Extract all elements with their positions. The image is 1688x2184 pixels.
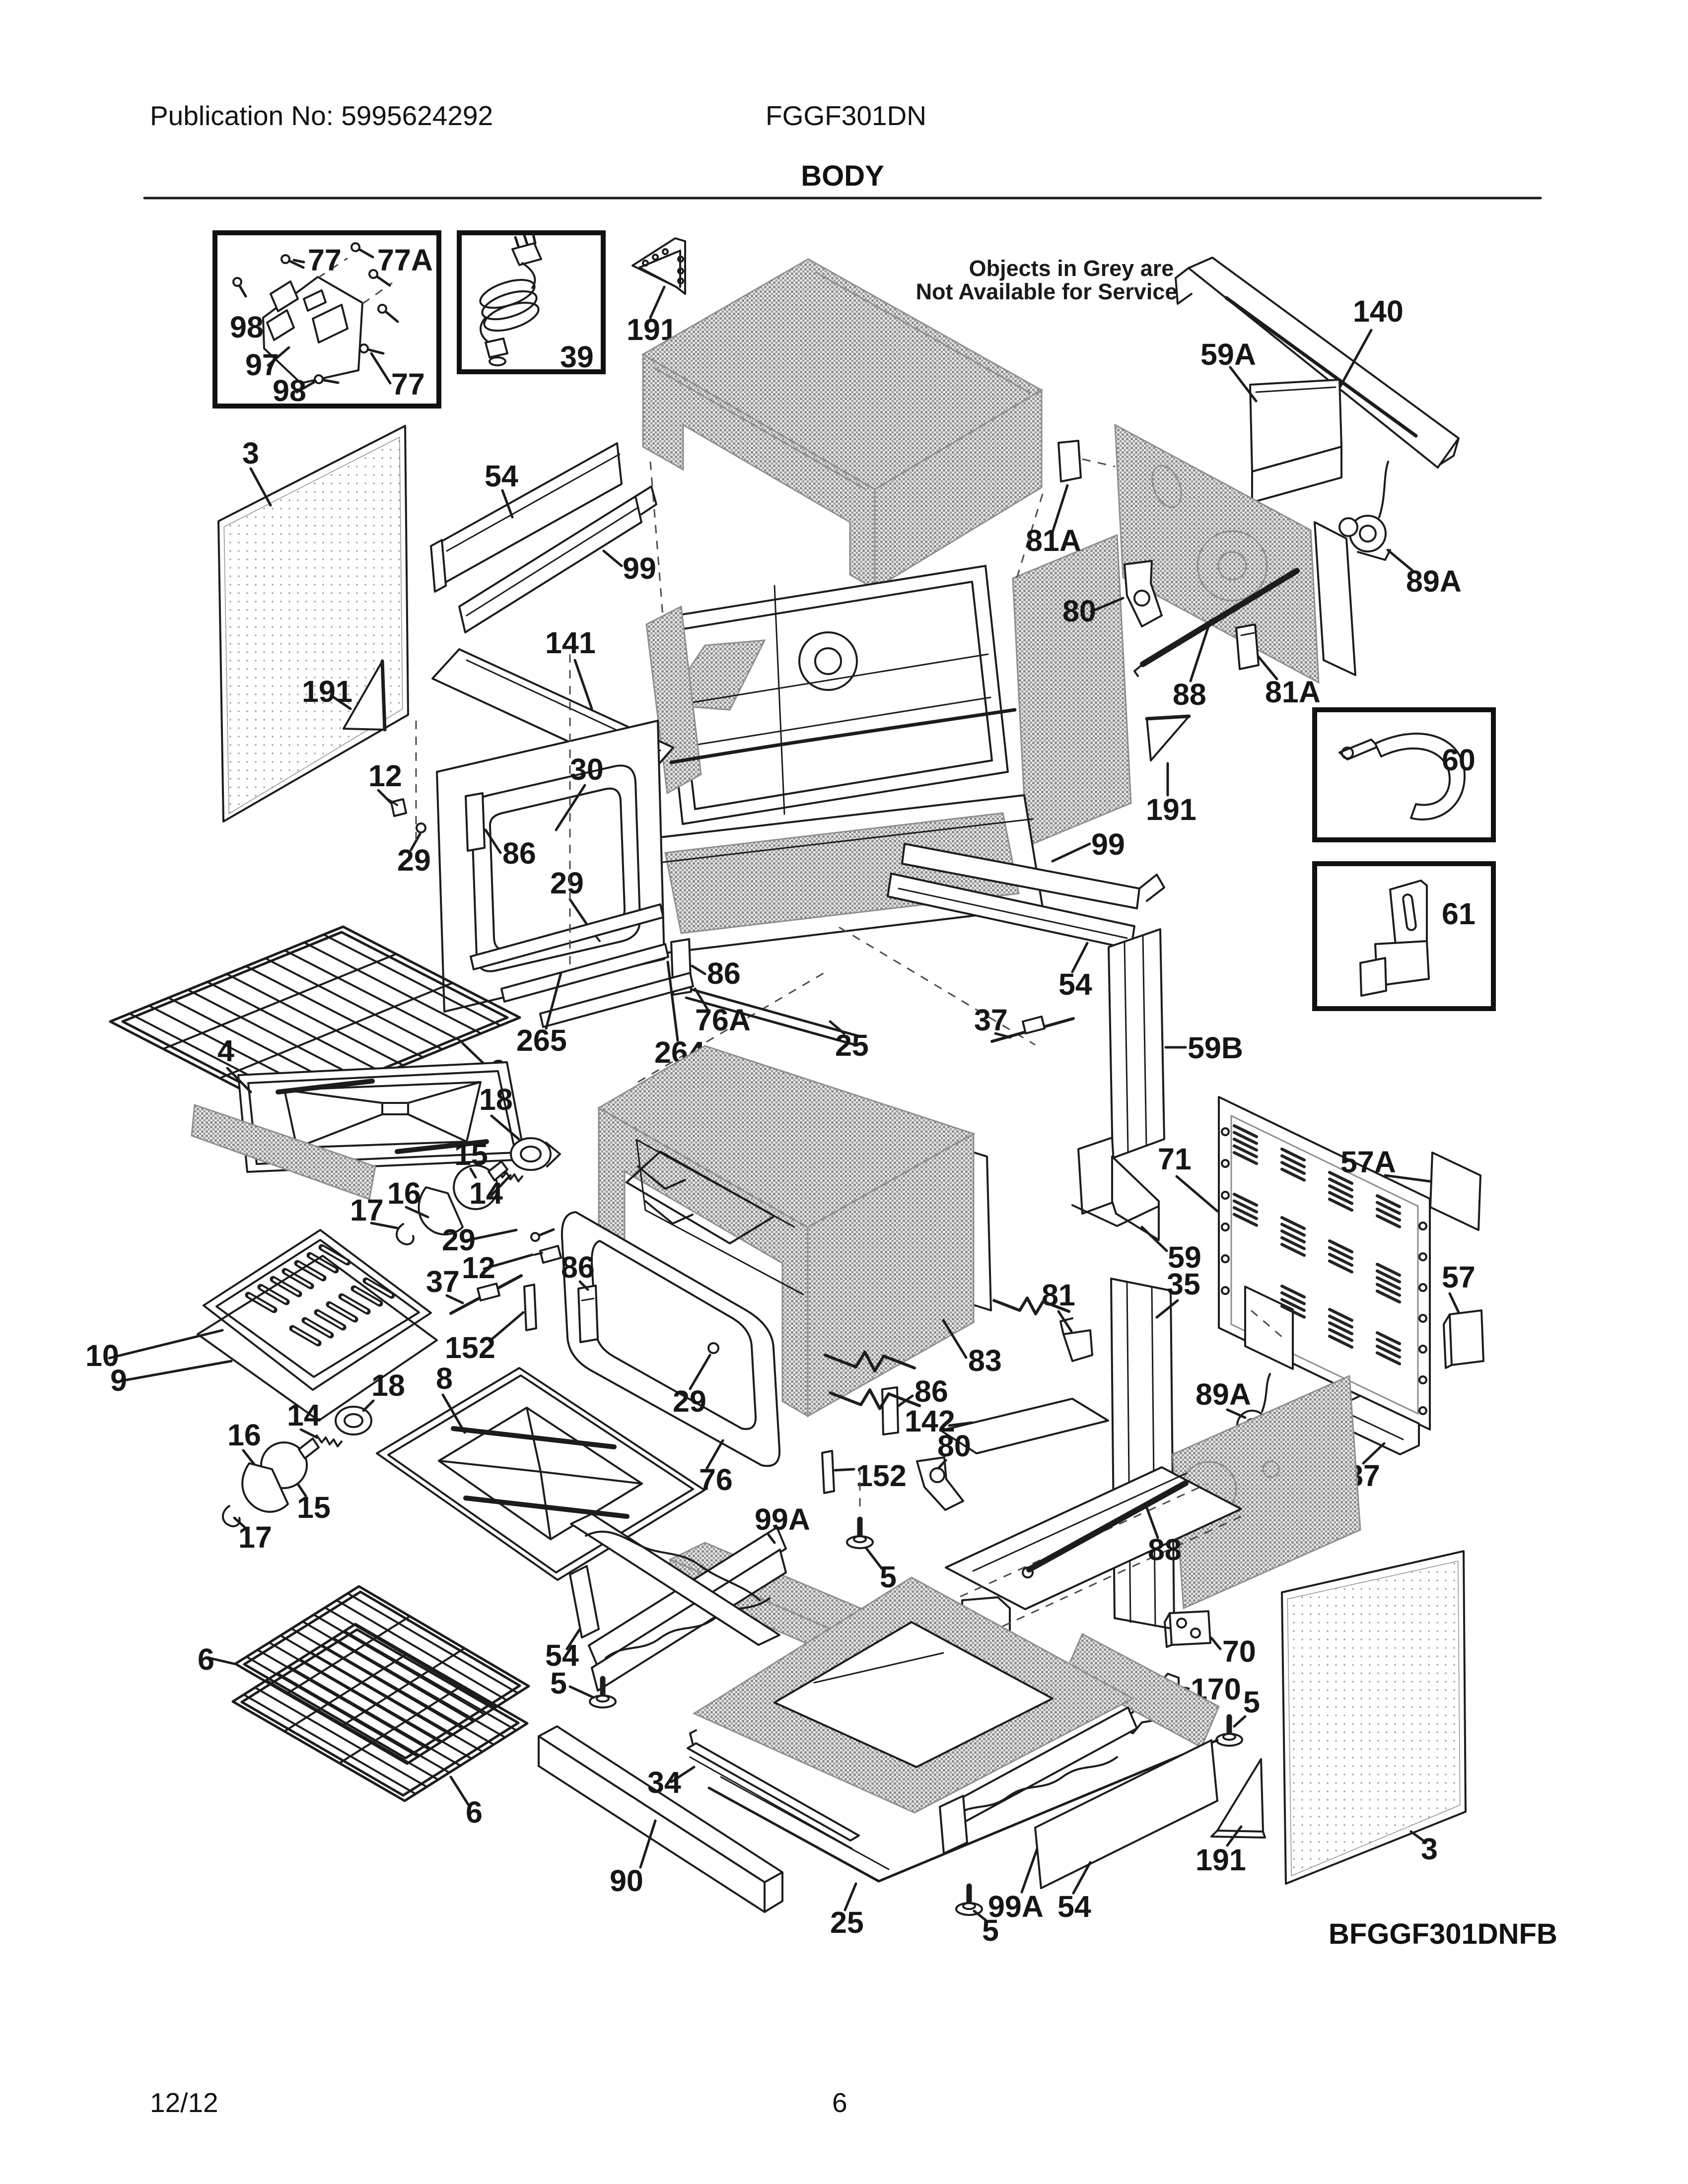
svg-text:12/12: 12/12: [150, 2087, 218, 2118]
svg-text:15: 15: [454, 1138, 488, 1171]
svg-text:90: 90: [610, 1864, 643, 1898]
svg-text:35: 35: [1167, 1267, 1200, 1301]
svg-text:265: 265: [516, 1024, 567, 1057]
svg-text:98: 98: [273, 374, 306, 408]
svg-text:17: 17: [238, 1520, 272, 1554]
svg-text:54: 54: [485, 459, 518, 493]
svg-text:54: 54: [1057, 1890, 1091, 1923]
svg-text:34: 34: [647, 1766, 681, 1799]
svg-text:86: 86: [707, 956, 741, 990]
svg-text:BODY: BODY: [801, 160, 884, 192]
svg-text:5: 5: [982, 1913, 999, 1947]
svg-text:83: 83: [968, 1344, 1002, 1377]
svg-text:86: 86: [502, 836, 536, 870]
svg-text:76: 76: [699, 1463, 733, 1497]
svg-text:86: 86: [561, 1250, 595, 1284]
svg-text:3: 3: [1421, 1832, 1438, 1866]
svg-text:89A: 89A: [1196, 1377, 1251, 1411]
svg-text:12: 12: [368, 759, 402, 793]
svg-text:25: 25: [835, 1028, 869, 1062]
svg-text:Publication No: 5995624292: Publication No: 5995624292: [150, 100, 493, 131]
svg-text:18: 18: [479, 1083, 513, 1116]
svg-text:6: 6: [198, 1642, 214, 1676]
svg-text:14: 14: [287, 1398, 321, 1432]
svg-text:140: 140: [1353, 294, 1404, 328]
svg-text:81A: 81A: [1265, 675, 1321, 709]
svg-text:4: 4: [217, 1034, 234, 1068]
svg-text:16: 16: [227, 1418, 261, 1452]
svg-text:15: 15: [297, 1491, 331, 1524]
svg-text:88: 88: [1148, 1533, 1182, 1567]
svg-text:8: 8: [436, 1362, 453, 1395]
svg-text:89A: 89A: [1406, 564, 1462, 598]
svg-text:77A: 77A: [377, 243, 433, 277]
svg-text:14: 14: [469, 1176, 503, 1210]
svg-text:99: 99: [623, 551, 656, 585]
svg-text:99A: 99A: [755, 1502, 810, 1536]
svg-text:17: 17: [350, 1193, 384, 1227]
svg-text:30: 30: [570, 752, 604, 786]
svg-text:76A: 76A: [695, 1003, 751, 1037]
svg-text:77: 77: [308, 243, 342, 277]
svg-text:99: 99: [1091, 827, 1125, 861]
svg-text:18: 18: [371, 1368, 405, 1402]
svg-text:152: 152: [445, 1331, 495, 1365]
svg-text:54: 54: [1058, 967, 1092, 1001]
svg-text:152: 152: [856, 1459, 907, 1493]
svg-text:88: 88: [1173, 678, 1206, 711]
svg-text:3: 3: [242, 436, 259, 470]
svg-text:59B: 59B: [1188, 1031, 1243, 1065]
svg-text:25: 25: [830, 1906, 864, 1939]
svg-text:FGGF301DN: FGGF301DN: [766, 100, 926, 131]
svg-text:59A: 59A: [1200, 338, 1256, 371]
svg-text:77: 77: [391, 367, 425, 401]
svg-text:16: 16: [387, 1176, 421, 1210]
svg-text:86: 86: [914, 1374, 948, 1408]
svg-text:57: 57: [1442, 1260, 1476, 1294]
svg-text:29: 29: [397, 843, 431, 877]
svg-text:70: 70: [1222, 1635, 1256, 1668]
svg-text:29: 29: [550, 866, 584, 900]
svg-text:29: 29: [673, 1384, 706, 1418]
svg-text:60: 60: [1442, 743, 1476, 777]
svg-text:9: 9: [110, 1364, 127, 1397]
svg-text:37: 37: [974, 1003, 1008, 1037]
svg-text:5: 5: [1243, 1685, 1260, 1719]
svg-text:39: 39: [560, 340, 594, 374]
svg-text:71: 71: [1158, 1142, 1192, 1176]
svg-text:80: 80: [937, 1429, 971, 1463]
svg-text:6: 6: [466, 1795, 483, 1829]
svg-text:61: 61: [1442, 897, 1476, 931]
svg-text:191: 191: [1196, 1843, 1246, 1877]
svg-text:5: 5: [550, 1666, 567, 1700]
svg-text:Not Available for Service: Not Available for Service: [916, 279, 1178, 304]
svg-text:6: 6: [832, 2087, 847, 2118]
svg-text:BFGGF301DNFB: BFGGF301DNFB: [1329, 1918, 1557, 1950]
svg-text:57A: 57A: [1340, 1145, 1396, 1179]
svg-text:37: 37: [426, 1265, 460, 1298]
svg-text:98: 98: [230, 310, 264, 344]
svg-text:191: 191: [1146, 793, 1196, 826]
svg-text:191: 191: [302, 675, 352, 708]
svg-text:Objects in Grey are: Objects in Grey are: [969, 256, 1174, 281]
svg-text:81A: 81A: [1026, 524, 1081, 557]
svg-text:80: 80: [1062, 594, 1096, 628]
svg-text:12: 12: [462, 1251, 495, 1285]
